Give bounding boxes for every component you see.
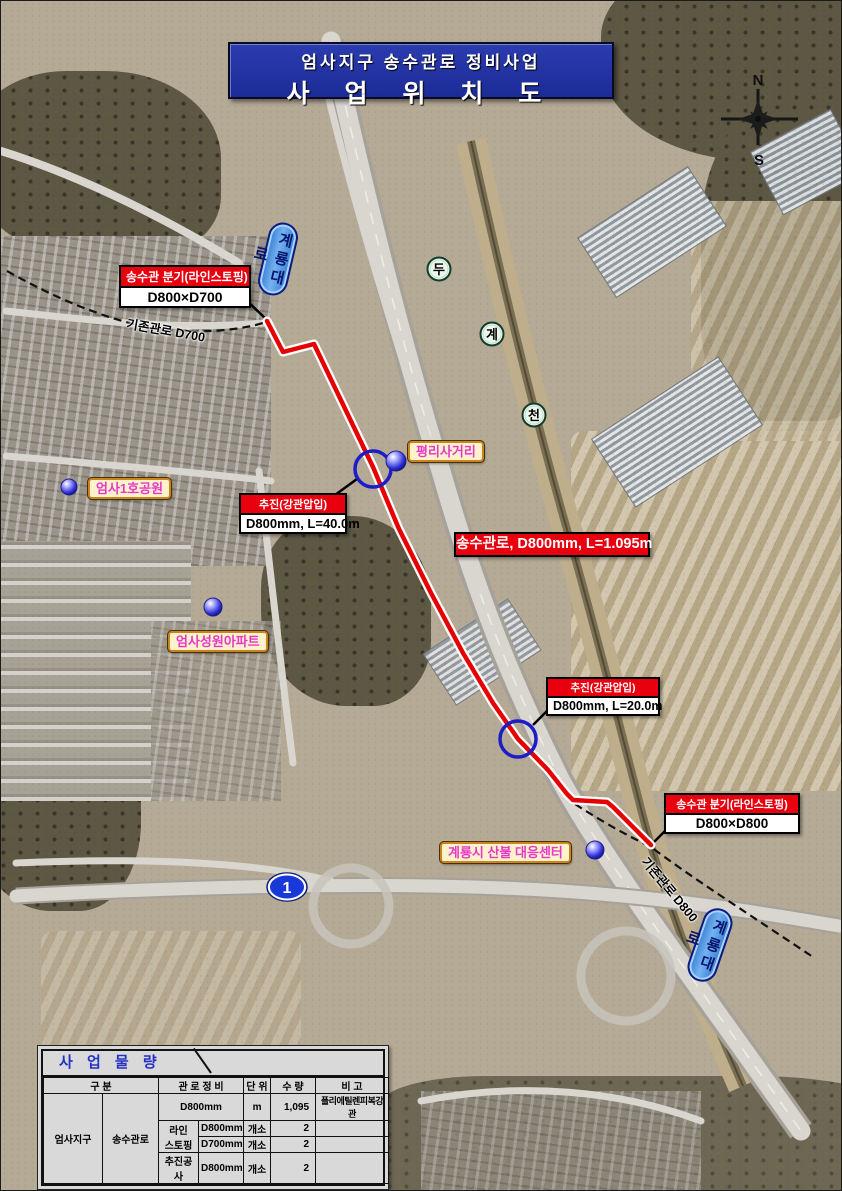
label-eomsa-park: 엄사1호공원 (88, 478, 171, 499)
route-shield-number: 1 (283, 880, 292, 897)
table-row-main: 엄사지구 송수관로 D800mm m 1,095 폴리에틸렌피복강관 (44, 1094, 389, 1121)
cell-main-note: 폴리에틸렌피복강관 (316, 1094, 389, 1121)
callout-mainline: 송수관로, D800mm, L=1.095m (454, 532, 650, 557)
cell-jacking-label: 추진공사 (159, 1153, 199, 1184)
compass-north-label: N (753, 72, 764, 89)
col-note: 비 고 (316, 1078, 389, 1094)
callout-jacking-top-body: D800mm, L=40.0m (241, 515, 345, 532)
cell-ls700-note (316, 1137, 389, 1153)
cell-jacking-qty: 2 (271, 1153, 316, 1184)
table-header-row: 구 분 관 로 정 비 단 위 수 량 비 고 (44, 1078, 389, 1094)
cell-ls700-spec: D700mm (199, 1137, 244, 1153)
callout-branch-bottom: 송수관 분기(라인스토핑) D800×D800 (664, 793, 800, 834)
col-qty: 수 량 (271, 1078, 316, 1094)
location-map-page: 두 계 천 1 N S 엄사지구 송수관로 정비사업 사 업 위 치 도 (0, 0, 842, 1191)
callout-branch-bottom-body: D800×D800 (666, 815, 798, 832)
label-fire-center: 계룡시 산불 대응센터 (440, 842, 571, 863)
cell-jacking-note (316, 1153, 389, 1184)
callout-branch-top: 송수관 분기(라인스토핑) D800×D700 (119, 265, 251, 308)
linestopping-line1: 라인 (161, 1122, 196, 1137)
callout-branch-bottom-header: 송수관 분기(라인스토핑) (666, 795, 798, 815)
cell-main-qty: 1,095 (271, 1094, 316, 1121)
cell-main-spec: D800mm (159, 1094, 244, 1121)
cell-ls800-note (316, 1121, 389, 1137)
callout-jacking-bottom-header: 추진(강관압입) (548, 679, 658, 698)
cell-ls700-unit: 개소 (244, 1137, 271, 1153)
cell-ls700-qty: 2 (271, 1137, 316, 1153)
cell-ls800-unit: 개소 (244, 1121, 271, 1137)
stream-char-gye: 계 (486, 327, 498, 342)
linestopping-line2: 스토핑 (161, 1137, 196, 1152)
map-overlay: 두 계 천 1 N S (1, 1, 842, 1191)
cell-ls800-spec: D800mm (199, 1121, 244, 1137)
cell-ls800-qty: 2 (271, 1121, 316, 1137)
cell-system: 송수관로 (103, 1094, 159, 1184)
leader-lines (243, 297, 668, 843)
map-title-box: 엄사지구 송수관로 정비사업 사 업 위 치 도 (228, 42, 614, 99)
route-1-shield: 1 (267, 873, 307, 901)
project-name: 엄사지구 송수관로 정비사업 (230, 48, 612, 73)
col-pipework: 관 로 정 비 (159, 1078, 244, 1094)
col-unit: 단 위 (244, 1078, 271, 1094)
stream-char-cheon: 천 (528, 408, 540, 423)
stream-char-du: 두 (433, 262, 445, 277)
cell-jacking-unit: 개소 (244, 1153, 271, 1184)
cell-main-unit: m (244, 1094, 271, 1121)
cell-district: 엄사지구 (44, 1094, 103, 1184)
quantity-table: 사 업 물 량 구 분 관 로 정 비 단 위 수 량 비 고 엄사지구 송수 (37, 1045, 389, 1190)
label-eomsa-apartment: 엄사성원아파트 (168, 631, 268, 652)
cell-linestopping: 라인 스토핑 (159, 1121, 199, 1153)
title-slant-divider (193, 1048, 212, 1074)
col-category: 구 분 (44, 1078, 159, 1094)
map-title: 사 업 위 치 도 (230, 74, 612, 110)
callout-branch-top-body: D800×D700 (121, 288, 249, 306)
quantity-table-titlebar: 사 업 물 량 (43, 1051, 383, 1077)
label-pyeongni-intersection: 평리사거리 (408, 441, 484, 462)
callout-jacking-top-header: 추진(강관압입) (241, 495, 345, 515)
quantity-table-title: 사 업 물 량 (43, 1054, 162, 1071)
compass-rose: N S (721, 72, 798, 169)
callout-jacking-top: 추진(강관압입) D800mm, L=40.0m (239, 493, 347, 534)
compass-south-label: S (754, 152, 764, 169)
callout-branch-top-header: 송수관 분기(라인스토핑) (121, 267, 249, 288)
callout-jacking-bottom-body: D800mm, L=20.0m (548, 698, 658, 714)
cell-jacking-spec: D800mm (199, 1153, 244, 1184)
callout-jacking-bottom: 추진(강관압입) D800mm, L=20.0m (546, 677, 660, 716)
